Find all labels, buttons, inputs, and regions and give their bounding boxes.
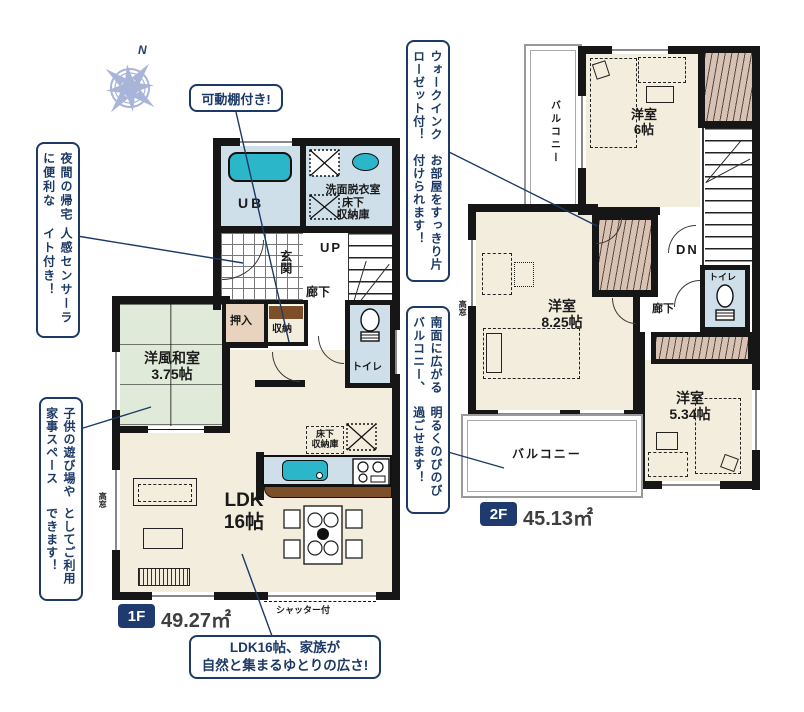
callout-text: お部屋をすっきり片付けられます！ — [412, 154, 444, 272]
callout-text: 人感センサーライト付き！ — [42, 227, 74, 328]
wall — [698, 53, 705, 128]
stair-edge — [702, 128, 704, 266]
staircase-dn — [705, 128, 752, 266]
kitchen-cabinet — [264, 486, 392, 498]
window — [148, 426, 204, 433]
window — [240, 138, 292, 146]
floor1-badge: 1F — [118, 604, 155, 628]
window — [468, 240, 476, 306]
window — [662, 481, 720, 489]
bed-pillow — [486, 333, 502, 373]
room-label-room6: 洋室 6帖 — [618, 108, 670, 138]
wall — [651, 213, 658, 297]
room-label-genkan: 玄関 — [278, 250, 292, 274]
room-label-ub: UB — [238, 195, 264, 211]
room-label-room825: 洋室 8.25帖 — [524, 298, 600, 330]
washing-machine-icon — [309, 149, 340, 177]
callout-walk-in-closet: ウォークインクローゼット付！ お部屋をすっきり片付けられます！ — [406, 40, 450, 282]
compass-rose-icon: N — [94, 42, 166, 122]
room-label-hallway2: 廊下 — [652, 303, 674, 316]
toilet-icon — [358, 308, 382, 344]
sink-icon — [352, 153, 379, 171]
wall — [468, 204, 598, 212]
wall — [300, 145, 306, 226]
stairs-up-label: UP — [320, 241, 342, 256]
label-line: 洋室 — [524, 298, 600, 314]
window — [752, 390, 760, 450]
room-label-tatami: 洋風和室 3.75帖 — [130, 350, 214, 382]
sofa-seat — [138, 484, 192, 502]
compass-north-label: N — [138, 43, 147, 57]
wall — [698, 121, 758, 128]
window — [612, 46, 668, 54]
window — [112, 352, 120, 410]
window — [268, 592, 376, 600]
callout-south-balcony: 南面に広がるバルコニー、 明るくのびのび過ごせます！ — [406, 306, 450, 514]
desk — [638, 57, 686, 83]
window — [578, 96, 586, 168]
chair — [514, 262, 534, 287]
callout-text: 南面に広がるバルコニー、 — [412, 316, 444, 406]
room-label-shuno: 収納 — [272, 324, 292, 336]
wall — [213, 226, 400, 233]
tv-board — [138, 568, 190, 586]
high-window-label: 高窓 — [458, 300, 467, 316]
wall — [468, 204, 476, 418]
floor2-badge: 2F — [480, 502, 517, 526]
callout-text: 明るくのびのび過ごせます！ — [412, 406, 444, 504]
floorplan-page: N 可動棚付き! 夜間の帰宅に便利な 人感センサーライト付き！ 子供の遊び場や家… — [0, 0, 804, 712]
room-label-toilet: トイレ — [352, 362, 382, 374]
callout-text: LDK16帖、家族が — [230, 639, 340, 657]
shuno-door — [269, 305, 303, 319]
room-label-toilet: トイレ — [709, 272, 736, 282]
closet-room6 — [705, 53, 752, 121]
toilet-icon — [714, 284, 736, 326]
dining-set — [280, 504, 366, 566]
callout-text: 子供の遊び場や家事スペース — [45, 407, 77, 507]
callout-sensor-light: 夜間の帰宅に便利な 人感センサーライト付き！ — [36, 142, 80, 338]
label-line: 16帖 — [212, 512, 276, 534]
room-label-ldk: LDK 16帖 — [212, 490, 276, 534]
door-arc — [674, 280, 700, 307]
stove-icon — [352, 458, 390, 486]
shutter-dash-line — [264, 601, 376, 602]
floor1-area: 49.27㎡ — [161, 604, 231, 633]
desk — [482, 253, 512, 295]
room-label-oshiire: 押入 — [230, 315, 252, 328]
wall — [112, 296, 230, 304]
desk — [648, 452, 688, 477]
room-label-balcony-west: バルコニー — [548, 100, 560, 165]
high-window-label: 高窓 — [98, 492, 107, 508]
kitchen-faucet-icon — [316, 472, 323, 479]
callout-text: としてご利用できます！ — [45, 507, 77, 591]
wall — [592, 290, 658, 297]
label-line: 洋室 — [618, 108, 670, 123]
room-label-hallway: 廊下 — [306, 286, 330, 300]
callout-text: ウォークインクローゼット付！ — [412, 50, 444, 154]
room-label-washroom: 洗面脱衣室 床下 収納庫 — [315, 184, 391, 222]
callout-text: 自然と集まるゆとりの広さ! — [202, 657, 369, 675]
chair — [656, 432, 678, 450]
wall — [112, 296, 120, 600]
room-label-balcony-south: バルコニー — [512, 448, 582, 462]
door-arc — [668, 225, 696, 253]
closet-room534-rail — [656, 337, 748, 359]
label-line: 洗面脱衣室 — [315, 184, 391, 197]
label-line: 洋風和室 — [130, 350, 214, 366]
label-line: 6帖 — [618, 123, 670, 138]
low-table — [143, 528, 183, 549]
wall — [213, 138, 221, 234]
callout-ldk: LDK16帖、家族が 自然と集まるゆとりの広さ! — [189, 635, 381, 679]
bathtub-icon — [228, 152, 292, 182]
window — [152, 592, 214, 600]
tv-stand — [646, 86, 674, 103]
underfloor-storage-icon — [346, 423, 377, 451]
window — [112, 470, 120, 550]
label-line: 床下 — [315, 197, 391, 210]
callout-text: 可動棚付き! — [201, 89, 270, 108]
shutter-label: シャッター付 — [276, 605, 330, 615]
label-line: 収納庫 — [308, 439, 342, 449]
callout-movable-shelf: 可動棚付き! — [189, 84, 283, 112]
label-line: 収納庫 — [315, 209, 391, 222]
floor2-area: 45.13㎡ — [523, 502, 593, 531]
underfloor-storage-label: 床下 収納庫 — [308, 429, 342, 450]
callout-text: 夜間の帰宅に便利な — [42, 152, 74, 227]
callout-kids-space: 子供の遊び場や家事スペース としてご利用できます！ — [39, 397, 83, 601]
label-line: 床下 — [308, 429, 342, 439]
label-line: 3.75帖 — [130, 366, 214, 382]
